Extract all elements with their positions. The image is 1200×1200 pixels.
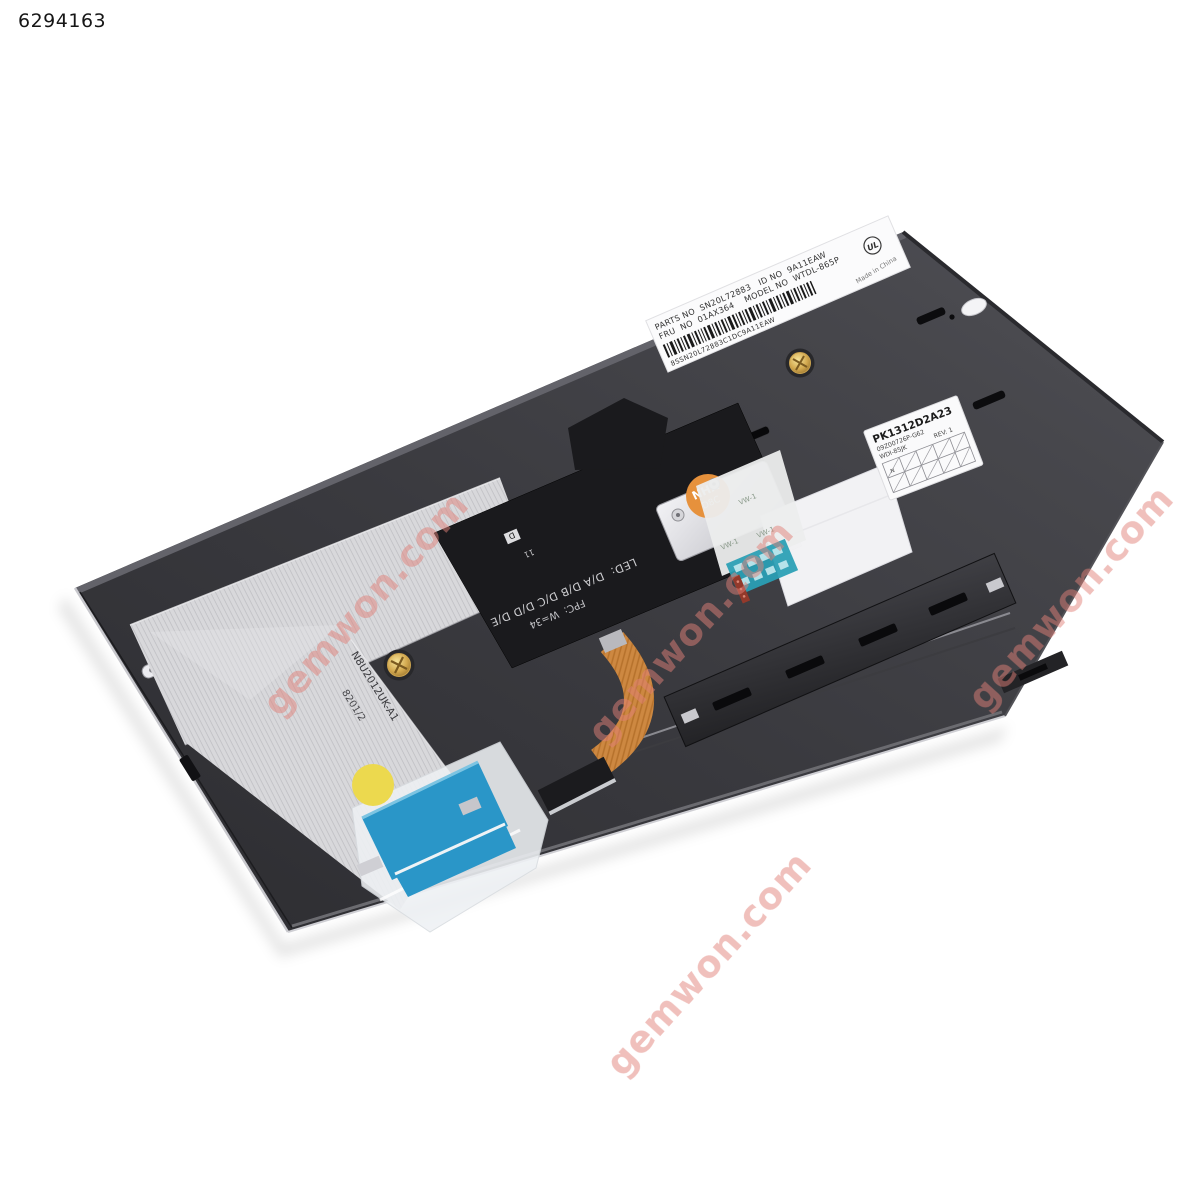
product-photo-keyboard-back: Y-1 N8U2012UK-A1 8201/2 LED: D/A D/B D/C…	[0, 0, 1200, 1200]
photo-id-label: 6294163	[18, 10, 106, 32]
yellow-dot-sticker	[352, 764, 394, 806]
gold-screw-left	[384, 650, 415, 681]
watermark-text: gemwon.com	[597, 843, 820, 1084]
gold-screw-top	[786, 349, 815, 378]
